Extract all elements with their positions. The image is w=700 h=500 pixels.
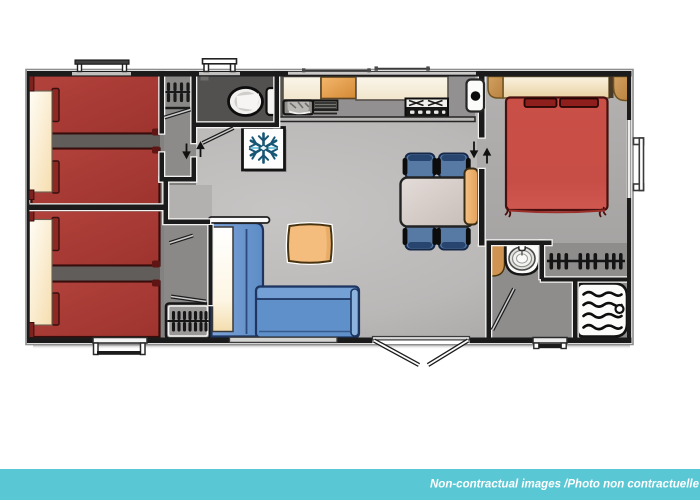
svg-text:Non-contractual images /Photo: Non-contractual images /Photo non contra… [430, 479, 700, 491]
